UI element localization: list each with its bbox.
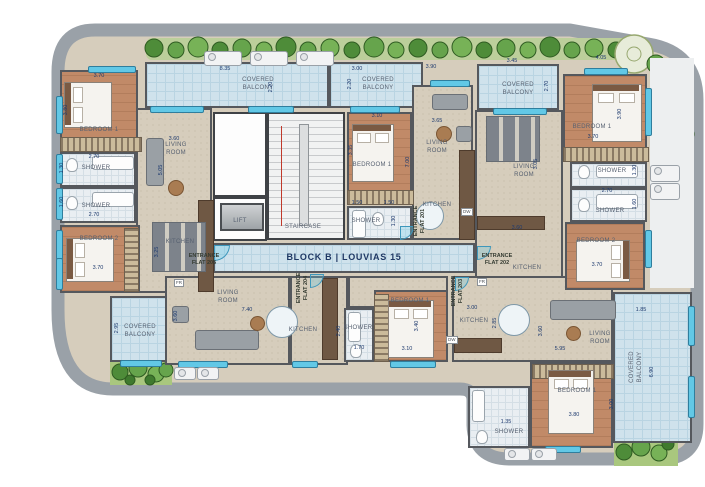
dimension-label: 5.05 xyxy=(158,165,164,176)
sofa xyxy=(550,300,616,320)
dishwasher-tag: DW xyxy=(446,336,458,344)
round-table xyxy=(498,304,530,336)
kitchen-counter xyxy=(454,338,502,353)
dimension-label: 3.00 xyxy=(609,399,615,410)
balcony2-label: COVERED BALCONY xyxy=(358,77,398,93)
room-label-shower: SHOWER xyxy=(598,168,627,176)
room-label-bedroom1-201: BEDROOM 1 xyxy=(353,162,392,170)
entrance-flat-203: ENTRANCE FLAT 203 xyxy=(451,274,465,308)
toilet xyxy=(476,430,488,444)
dimension-label: 2.70 xyxy=(89,154,100,160)
dimension-label: 2.95 xyxy=(114,323,120,334)
dimension-label: 3.00 xyxy=(352,66,363,72)
dimension-label: 3.90 xyxy=(426,64,437,70)
window xyxy=(493,108,547,115)
dimension-label: 1.50 xyxy=(352,200,363,206)
room-label-shower-203: SHOWER xyxy=(495,429,524,437)
dimension-label: 3.70 xyxy=(94,73,105,79)
room-label-shower: SHOWER xyxy=(82,203,111,211)
dimension-label: 3.60 xyxy=(169,136,180,142)
armchair xyxy=(456,126,472,142)
dimension-label: 1.60 xyxy=(632,199,638,210)
entrance-flat-202: ENTRANCE FLAT 202 xyxy=(481,253,513,267)
ac-unit xyxy=(296,51,334,66)
room-label-kitchen-204: KITCHEN xyxy=(289,327,317,335)
dimension-label: 1.35 xyxy=(501,419,512,425)
ac-unit xyxy=(531,448,557,461)
room-label-bedroom2-205: BEDROOM 2 xyxy=(80,236,119,244)
ac-unit xyxy=(197,367,219,380)
room-label-living-205: LIVING ROOM xyxy=(156,142,196,158)
ac-unit xyxy=(650,183,680,200)
dimension-label: 3.10 xyxy=(372,113,383,119)
dimension-label: 2.20 xyxy=(268,82,274,93)
double-bed xyxy=(548,370,594,434)
wardrobe xyxy=(124,228,139,292)
dimension-label: 7.00 xyxy=(405,157,411,168)
window xyxy=(150,106,204,113)
dimension-label: 3.90 xyxy=(617,109,623,120)
dimension-label: 8.35 xyxy=(220,66,231,72)
kitchen-counter xyxy=(322,278,338,360)
ac-unit xyxy=(650,165,680,182)
wardrobe xyxy=(563,147,649,162)
kitchen-counter xyxy=(459,150,475,240)
window xyxy=(292,361,318,368)
window xyxy=(56,230,63,260)
dishwasher-tag: DW xyxy=(461,208,473,216)
ac-unit xyxy=(174,367,196,380)
window xyxy=(688,376,695,418)
window xyxy=(120,360,162,367)
room-label-kitchen-201: KITCHEN xyxy=(423,202,451,210)
balcony3-label: COVERED BALCONY xyxy=(498,82,538,98)
dimension-label: 2.40 xyxy=(336,326,342,337)
room-label-kitchen-203: KITCHEN xyxy=(460,318,488,326)
dimension-label: 3.70 xyxy=(588,134,599,140)
dimension-label: 1.30 xyxy=(59,163,65,174)
dimension-label: 1.60 xyxy=(59,197,65,208)
dimension-label: 3.80 xyxy=(63,105,69,116)
dimension-label: 7.40 xyxy=(242,307,253,313)
window xyxy=(584,68,628,75)
room-label-bedroom1-204: BEDROOM 1 xyxy=(391,298,430,306)
toilet xyxy=(66,158,78,172)
window xyxy=(645,230,652,268)
dimension-label: 3.65 xyxy=(432,118,443,124)
ac-unit xyxy=(250,51,288,66)
dimension-label: 3.60 xyxy=(512,225,523,231)
room-label-bedroom1-203: BEDROOM 1 xyxy=(558,388,597,396)
dimension-label: 3.00 xyxy=(467,305,478,311)
room-label-living-201: LIVING ROOM xyxy=(417,140,457,156)
room-label-shower: SHOWER xyxy=(82,165,111,173)
entrance-flat-205: ENTRANCE FLAT 205 xyxy=(188,253,220,267)
room-label-shower-204: SHOWER xyxy=(344,325,373,333)
double-bed xyxy=(64,82,112,128)
dimension-label: 3.60 xyxy=(538,326,544,337)
dimension-label: 1.50 xyxy=(384,200,395,206)
window xyxy=(56,258,63,290)
stair-rail xyxy=(299,124,309,226)
room-label-shower: SHOWER xyxy=(596,208,625,216)
room-label-living-203: LIVING ROOM xyxy=(580,331,620,347)
dining-set xyxy=(486,116,540,162)
dimension-label: 6.90 xyxy=(649,367,655,378)
dimension-label: 2.20 xyxy=(347,79,353,90)
dimension-label: 3.60 xyxy=(173,311,179,322)
window xyxy=(350,106,400,113)
balcony-1 xyxy=(145,62,329,108)
floor-plan: FR DW FR DW BEDROOM 1 SHOWER SHOWER BEDR… xyxy=(0,0,705,487)
dimension-label: 3.25 xyxy=(154,247,160,258)
dimension-label: 3.70 xyxy=(93,265,104,271)
dimension-label: 2.85 xyxy=(492,318,498,329)
dimension-label: 3.80 xyxy=(569,412,580,418)
window xyxy=(248,106,294,113)
dimension-label: 1.30 xyxy=(632,165,638,176)
room-label-living-204: LIVING ROOM xyxy=(208,290,248,306)
window xyxy=(56,96,63,134)
window xyxy=(430,80,470,87)
coffee-table xyxy=(250,316,265,331)
dimension-label: 3.45 xyxy=(507,58,518,64)
dimension-label: 2.70 xyxy=(89,212,100,218)
window xyxy=(688,306,695,346)
window xyxy=(645,88,652,136)
coffee-table xyxy=(566,326,581,341)
lift-cabin xyxy=(220,203,264,231)
dimension-label: 5.95 xyxy=(555,346,566,352)
double-bed xyxy=(66,238,114,282)
ac-unit xyxy=(504,448,530,461)
room-label-kitchen-205: KITCHEN xyxy=(166,239,194,247)
dimension-label: 3.35 xyxy=(348,145,354,156)
double-bed xyxy=(352,124,394,182)
shower-tray xyxy=(472,390,485,422)
wardrobe xyxy=(374,294,389,362)
wardrobe xyxy=(60,137,142,152)
room-label-shower-201: SHOWER xyxy=(352,218,381,226)
room-label-bedroom1-205: BEDROOM 1 xyxy=(80,127,119,135)
dimension-label: 1.85 xyxy=(636,307,647,313)
ac-unit xyxy=(204,51,242,66)
fridge-tag: FR xyxy=(477,278,487,286)
room-label-bedroom1-202: BEDROOM 1 xyxy=(573,124,612,132)
window xyxy=(88,66,136,73)
dimension-label: 2.70 xyxy=(602,188,613,194)
corridor-label: BLOCK B | LOUVIAS 15 xyxy=(286,252,401,264)
balcony4-label: COVERED BALCONY xyxy=(120,324,160,340)
dimension-label: 4.05 xyxy=(596,55,607,61)
dimension-label: 1.70 xyxy=(354,345,365,351)
dimension-label: 1.30 xyxy=(391,216,397,227)
dimension-label: 3.70 xyxy=(592,262,603,268)
room-label-staircase: STAIRCASE xyxy=(285,224,321,232)
dimension-label: 3.40 xyxy=(414,321,420,332)
coffee-table xyxy=(168,180,184,196)
stair-path-line xyxy=(281,126,282,226)
balcony5-label: COVERED BALCONY xyxy=(629,347,645,387)
window xyxy=(390,361,436,368)
dimension-label: 3.10 xyxy=(402,346,413,352)
double-bed xyxy=(576,240,630,282)
sofa xyxy=(195,330,259,350)
room-label-bedroom2-202: BEDROOM 2 xyxy=(577,238,616,246)
toilet xyxy=(578,198,590,212)
toilet xyxy=(578,165,590,179)
sofa xyxy=(432,94,468,110)
room-label-lift: LIFT xyxy=(233,218,247,226)
toilet xyxy=(66,196,78,210)
entrance-flat-201: ENTRANCE FLAT 201 xyxy=(413,204,427,238)
room-label-kitchen-202: KITCHEN xyxy=(513,265,541,273)
dimension-label: 2.70 xyxy=(544,81,550,92)
fridge-tag: FR xyxy=(174,279,184,287)
core-lobby xyxy=(213,112,267,197)
entrance-flat-204: ENTRANCE FLAT 204 xyxy=(296,271,310,305)
dimension-label: 3.05 xyxy=(533,159,539,170)
